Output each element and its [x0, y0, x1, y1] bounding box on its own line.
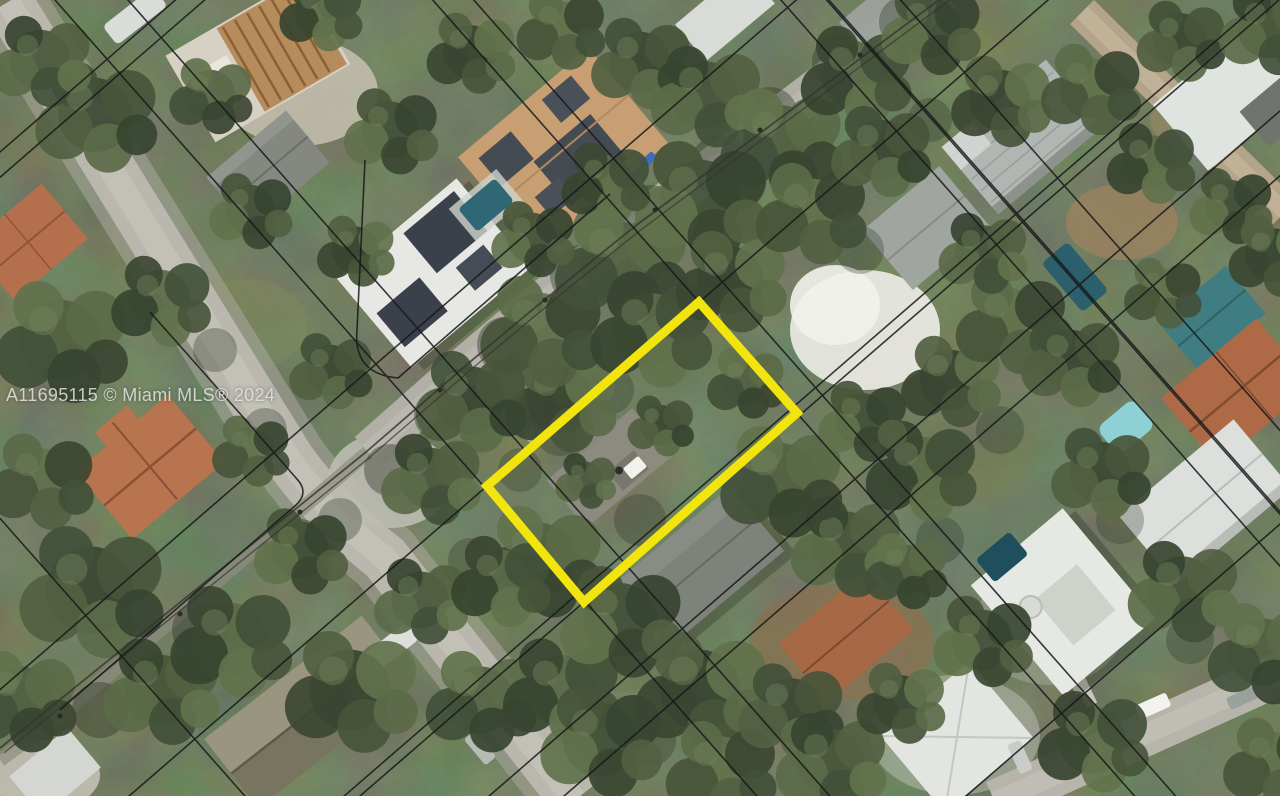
tree-blob — [58, 479, 93, 514]
tree-blob — [967, 379, 1000, 412]
tree-blob — [369, 250, 395, 276]
tree-blob — [784, 184, 808, 208]
tree-blob — [17, 35, 39, 57]
tree-blob — [407, 453, 429, 475]
tree-blob — [56, 554, 87, 585]
tree-blob — [232, 430, 249, 447]
tree-blob — [1211, 184, 1229, 202]
tree-blob — [511, 299, 537, 325]
tree-blob — [335, 12, 363, 40]
tree-blob — [137, 275, 159, 297]
tree-blob — [1047, 335, 1069, 357]
aerial-listing-photo: A11695115 © Miami MLS® 2024 — [0, 0, 1280, 796]
tree-blob — [201, 609, 227, 635]
tree-blob — [999, 639, 1032, 672]
tree-blob — [819, 517, 843, 541]
tree-blob — [984, 294, 1008, 318]
tree-blob — [477, 555, 499, 577]
tree-blob — [804, 734, 828, 758]
tree-blob — [621, 299, 647, 325]
tree-blob — [345, 370, 373, 398]
tree-blob — [829, 211, 866, 248]
tree-blob — [311, 349, 329, 367]
tree-blob — [319, 656, 348, 685]
tree-blob — [29, 306, 58, 335]
tree-blob — [596, 480, 616, 500]
tree-blob — [517, 579, 550, 612]
tree-blob — [177, 299, 210, 332]
tree-blob — [1129, 140, 1148, 159]
tree-blob — [1236, 624, 1260, 648]
tree-blob — [641, 619, 682, 660]
tree-blob — [897, 149, 930, 182]
tree-blob — [644, 408, 658, 422]
tree-blob — [617, 37, 639, 59]
tree-blob — [15, 453, 38, 476]
tree-blob — [939, 469, 976, 506]
tree-blob — [671, 329, 712, 370]
tree-blob — [407, 130, 439, 162]
tree-blob — [571, 465, 584, 478]
tree-blob — [368, 106, 388, 126]
tree-blob — [878, 420, 908, 450]
tree-blob — [1166, 162, 1196, 192]
tree-blob — [83, 339, 128, 384]
tree-blob — [998, 252, 1028, 282]
tree-blob — [1117, 471, 1150, 504]
tree-blob — [193, 328, 237, 372]
tree-blob — [265, 210, 293, 238]
tree-blob — [916, 702, 946, 732]
tree-blob — [669, 656, 698, 685]
tree-blob — [727, 362, 744, 379]
tree-blob — [1077, 447, 1099, 469]
tree-blob — [765, 683, 788, 706]
tree-blob — [874, 74, 911, 111]
tree-blob — [801, 479, 842, 520]
tree-blob — [879, 680, 898, 699]
tree-blob — [547, 238, 575, 266]
tree-blob — [39, 699, 76, 736]
tree-blob — [1159, 18, 1178, 37]
tree-blob — [1156, 562, 1180, 586]
tree-blob — [977, 75, 999, 97]
tree-blob — [264, 450, 290, 476]
tree-blob — [231, 189, 249, 207]
tree-blob — [947, 27, 980, 60]
tree-blob — [961, 230, 980, 249]
tree-blob — [398, 576, 418, 596]
tree-blob — [1251, 233, 1270, 252]
tree-blob — [621, 739, 662, 780]
tree-blob — [1249, 737, 1271, 759]
tree-blob — [539, 6, 558, 25]
tree-blob — [1107, 87, 1140, 120]
tree-blob — [886, 549, 904, 567]
tree-blob — [927, 355, 949, 377]
satellite-map — [0, 0, 1280, 796]
tree-blob — [1176, 292, 1202, 318]
tree-blob — [841, 398, 860, 417]
tree-blob — [373, 689, 418, 734]
tree-blob — [857, 125, 879, 147]
tree-blob — [449, 30, 468, 49]
tree-blob — [225, 95, 253, 123]
tree-blob — [679, 67, 703, 91]
tree-blob — [672, 425, 694, 447]
tree-blob — [116, 114, 157, 155]
tree-blob — [576, 28, 606, 58]
tree-blob — [920, 570, 948, 598]
tree-blob — [749, 279, 786, 316]
tree-blob — [533, 661, 558, 686]
tree-blob — [1087, 359, 1120, 392]
tree-blob — [976, 406, 1024, 454]
tree-blob — [751, 111, 777, 137]
tree-blob — [317, 550, 349, 582]
tree-blob — [1067, 63, 1089, 85]
tree-blob — [694, 742, 718, 766]
tree-blob — [621, 182, 651, 212]
